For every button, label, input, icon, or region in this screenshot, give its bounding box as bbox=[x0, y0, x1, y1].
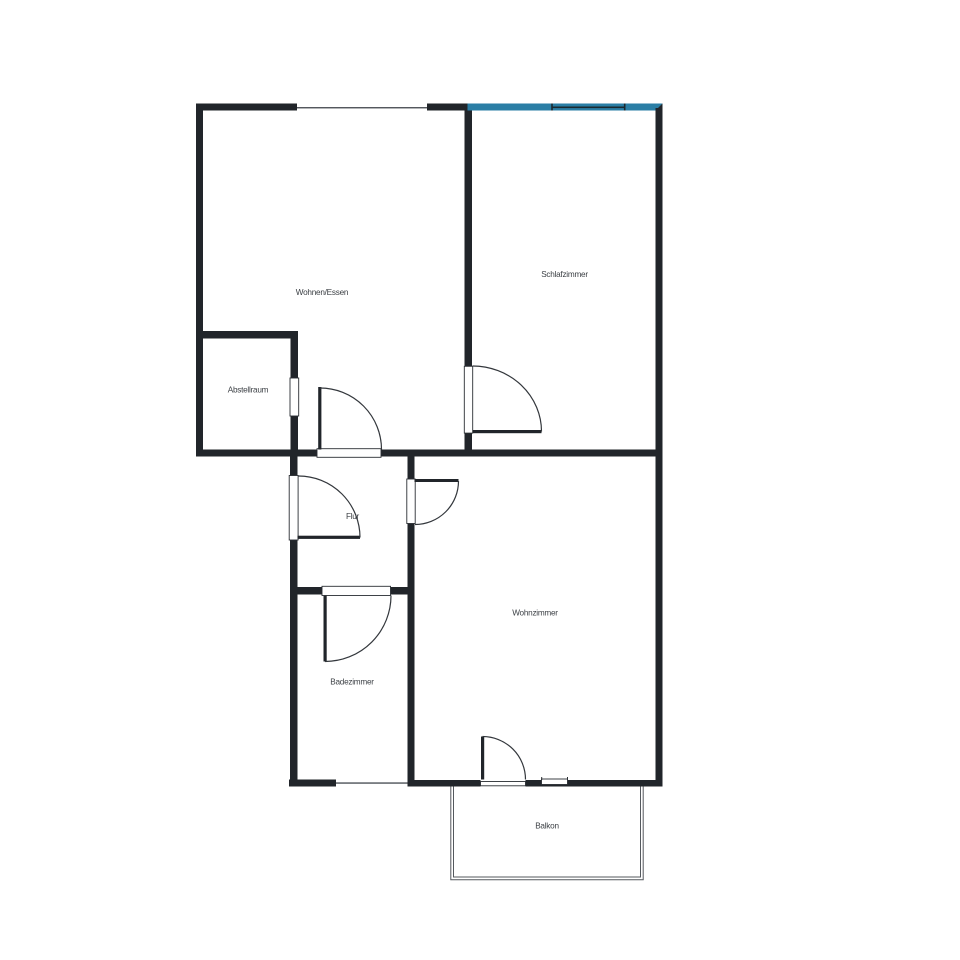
svg-text:Wohnen/Essen: Wohnen/Essen bbox=[296, 288, 349, 297]
svg-text:Flur: Flur bbox=[346, 512, 360, 521]
svg-text:Schlafzimmer: Schlafzimmer bbox=[541, 270, 588, 279]
svg-text:Abstellraum: Abstellraum bbox=[228, 386, 269, 395]
svg-text:Badezimmer: Badezimmer bbox=[330, 678, 374, 687]
svg-text:Wohnzimmer: Wohnzimmer bbox=[512, 609, 558, 618]
svg-text:Balkon: Balkon bbox=[535, 822, 559, 831]
